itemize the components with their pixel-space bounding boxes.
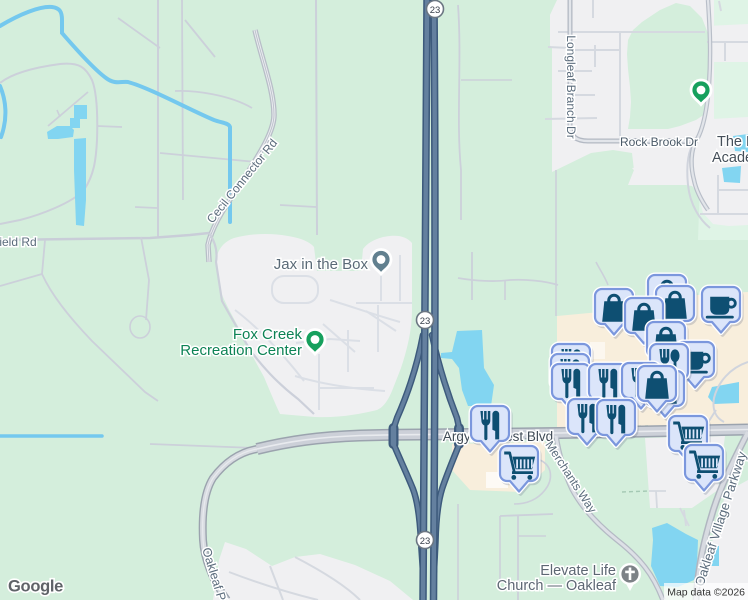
- svg-text:Google: Google: [8, 578, 63, 596]
- svg-text:Recreation Center: Recreation Center: [180, 342, 302, 359]
- svg-text:Fox Creek: Fox Creek: [233, 326, 303, 343]
- svg-text:23: 23: [430, 5, 441, 16]
- svg-text:Church — Oakleaf: Church — Oakleaf: [497, 578, 617, 594]
- svg-text:23: 23: [420, 536, 431, 547]
- svg-text:Elevate Life: Elevate Life: [540, 563, 616, 579]
- svg-text:Map data ©2026: Map data ©2026: [667, 587, 745, 599]
- svg-text:Academ: Academ: [712, 150, 748, 166]
- svg-text:23: 23: [420, 316, 431, 327]
- svg-text:field Rd: field Rd: [0, 235, 37, 249]
- svg-text:Longleaf Branch Dr: Longleaf Branch Dr: [564, 35, 578, 138]
- svg-text:The De: The De: [717, 134, 748, 150]
- svg-text:Jax in the Box: Jax in the Box: [274, 256, 369, 273]
- svg-text:Rock Brook Dr: Rock Brook Dr: [620, 135, 698, 149]
